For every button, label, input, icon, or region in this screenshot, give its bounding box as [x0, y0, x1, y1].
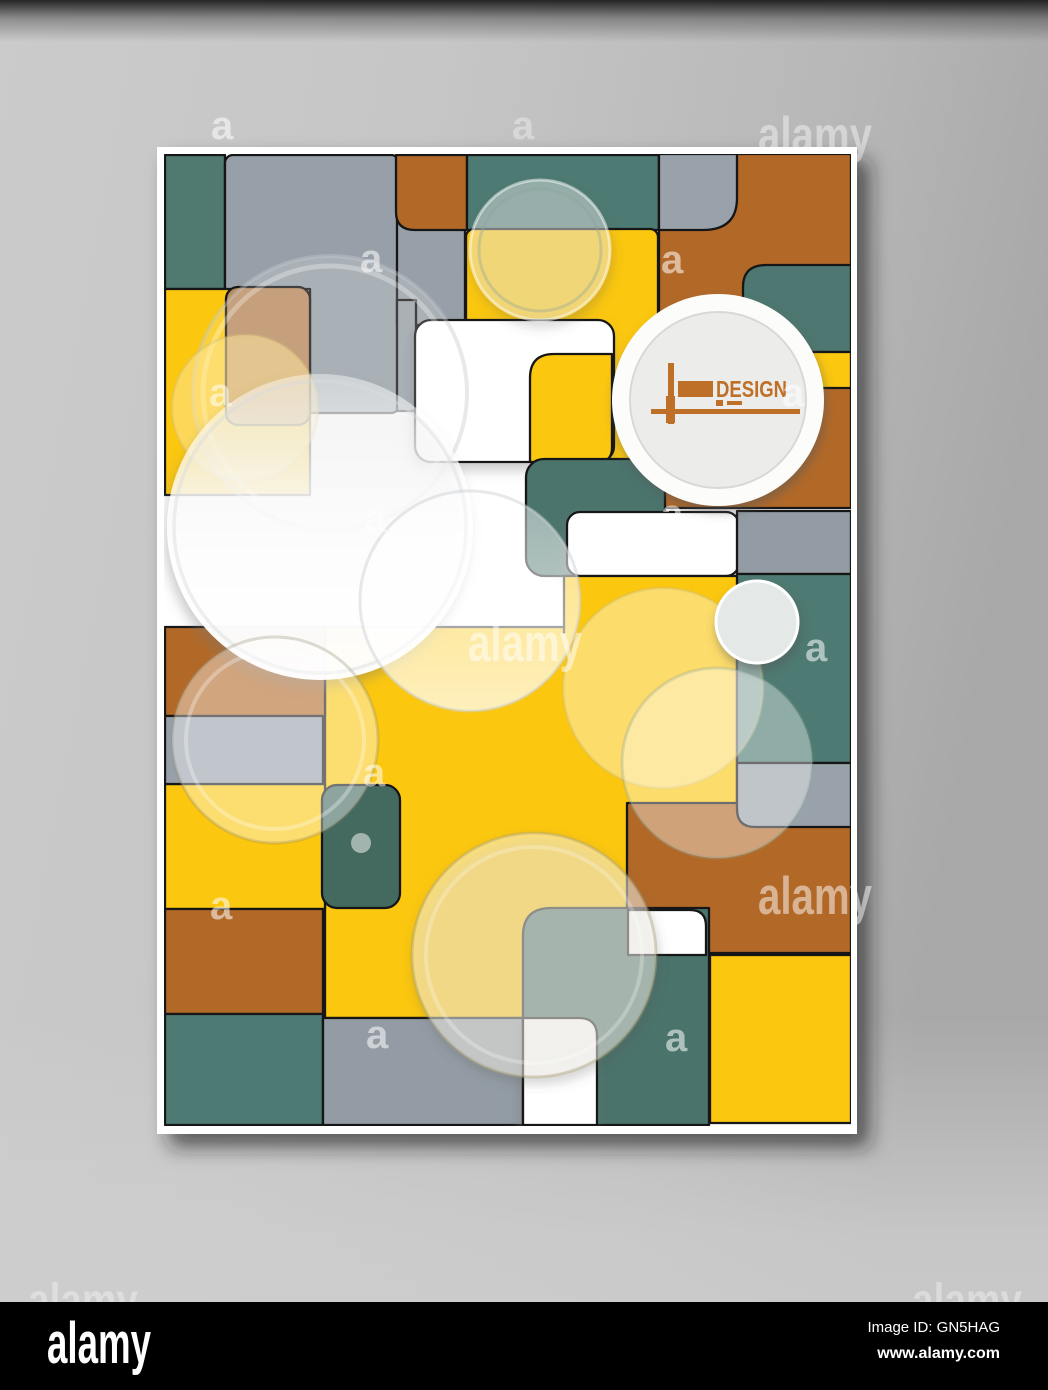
svg-text:a: a [805, 626, 828, 670]
svg-text:a: a [782, 371, 805, 415]
svg-text:alamy: alamy [758, 867, 872, 926]
svg-text:a: a [209, 371, 232, 415]
svg-text:a: a [661, 238, 684, 282]
svg-text:a: a [661, 492, 684, 536]
svg-text:a: a [364, 497, 387, 541]
svg-text:alamy: alamy [758, 107, 872, 163]
svg-text:a: a [211, 104, 234, 148]
svg-text:alamy: alamy [468, 614, 582, 673]
svg-text:a: a [366, 1013, 389, 1057]
svg-text:alamy: alamy [47, 1311, 151, 1376]
svg-text:a: a [210, 884, 233, 928]
svg-text:a: a [512, 104, 535, 148]
svg-text:www.alamy.com: www.alamy.com [876, 1345, 1000, 1362]
svg-text:a: a [363, 751, 386, 795]
svg-text:Image ID: GN5HAG: Image ID: GN5HAG [867, 1319, 1000, 1336]
svg-text:a: a [360, 237, 383, 281]
svg-text:a: a [665, 1016, 688, 1060]
svg-text:DESIGN: DESIGN [716, 376, 787, 402]
